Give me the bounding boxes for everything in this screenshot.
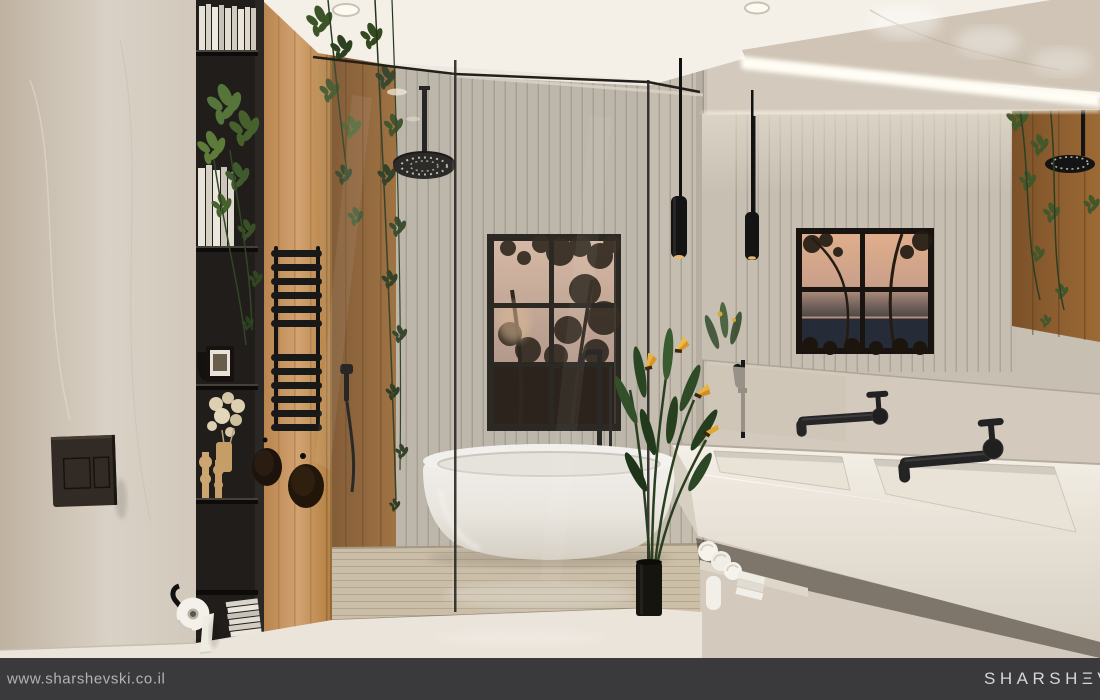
website-url: www.sharshevski.co.il bbox=[7, 671, 165, 688]
glass-partition bbox=[313, 57, 702, 620]
bathroom-render-image: www.sharshevski.co.il SHARSHΞVSKI bbox=[0, 0, 1100, 700]
recessed-spotlight bbox=[745, 3, 769, 14]
pendant-bulb-glow bbox=[674, 255, 684, 259]
wall-washer-light bbox=[956, 27, 1020, 57]
glass-joint bbox=[454, 60, 457, 612]
recessed-spotlight bbox=[333, 4, 359, 16]
pendant-bulb-glow bbox=[748, 256, 756, 260]
photo-frame bbox=[206, 346, 234, 382]
books-top bbox=[199, 4, 256, 51]
mirror-window-reflection bbox=[796, 228, 934, 355]
left-marble-wall bbox=[0, 0, 196, 658]
wall-washer-light bbox=[1032, 48, 1092, 76]
shelf-unit bbox=[195, 0, 264, 658]
scene-render bbox=[0, 0, 1100, 658]
watermark-bar: www.sharshevski.co.il SHARSHΞVSKI bbox=[0, 658, 1100, 700]
vanity-mirror bbox=[702, 85, 1100, 400]
brand-logo: SHARSHΞVSKI bbox=[984, 669, 1100, 689]
wall-washer-light bbox=[869, 5, 941, 39]
plant-vase bbox=[636, 559, 662, 616]
